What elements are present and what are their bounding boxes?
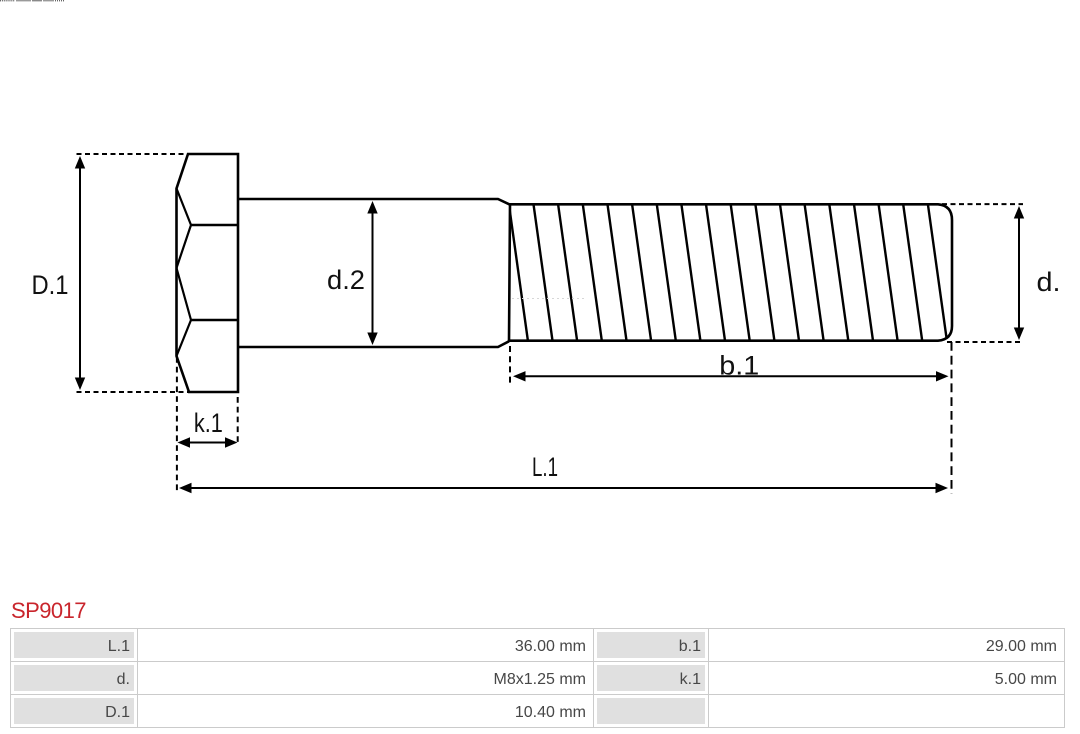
svg-text:k.1: k.1 xyxy=(194,408,223,438)
svg-text:b.1: b.1 xyxy=(719,351,759,381)
svg-text:D.1: D.1 xyxy=(32,270,69,300)
svg-text:L.1: L.1 xyxy=(532,452,558,482)
svg-text:d.2: d.2 xyxy=(327,265,365,295)
svg-text:d.: d. xyxy=(1037,267,1061,297)
